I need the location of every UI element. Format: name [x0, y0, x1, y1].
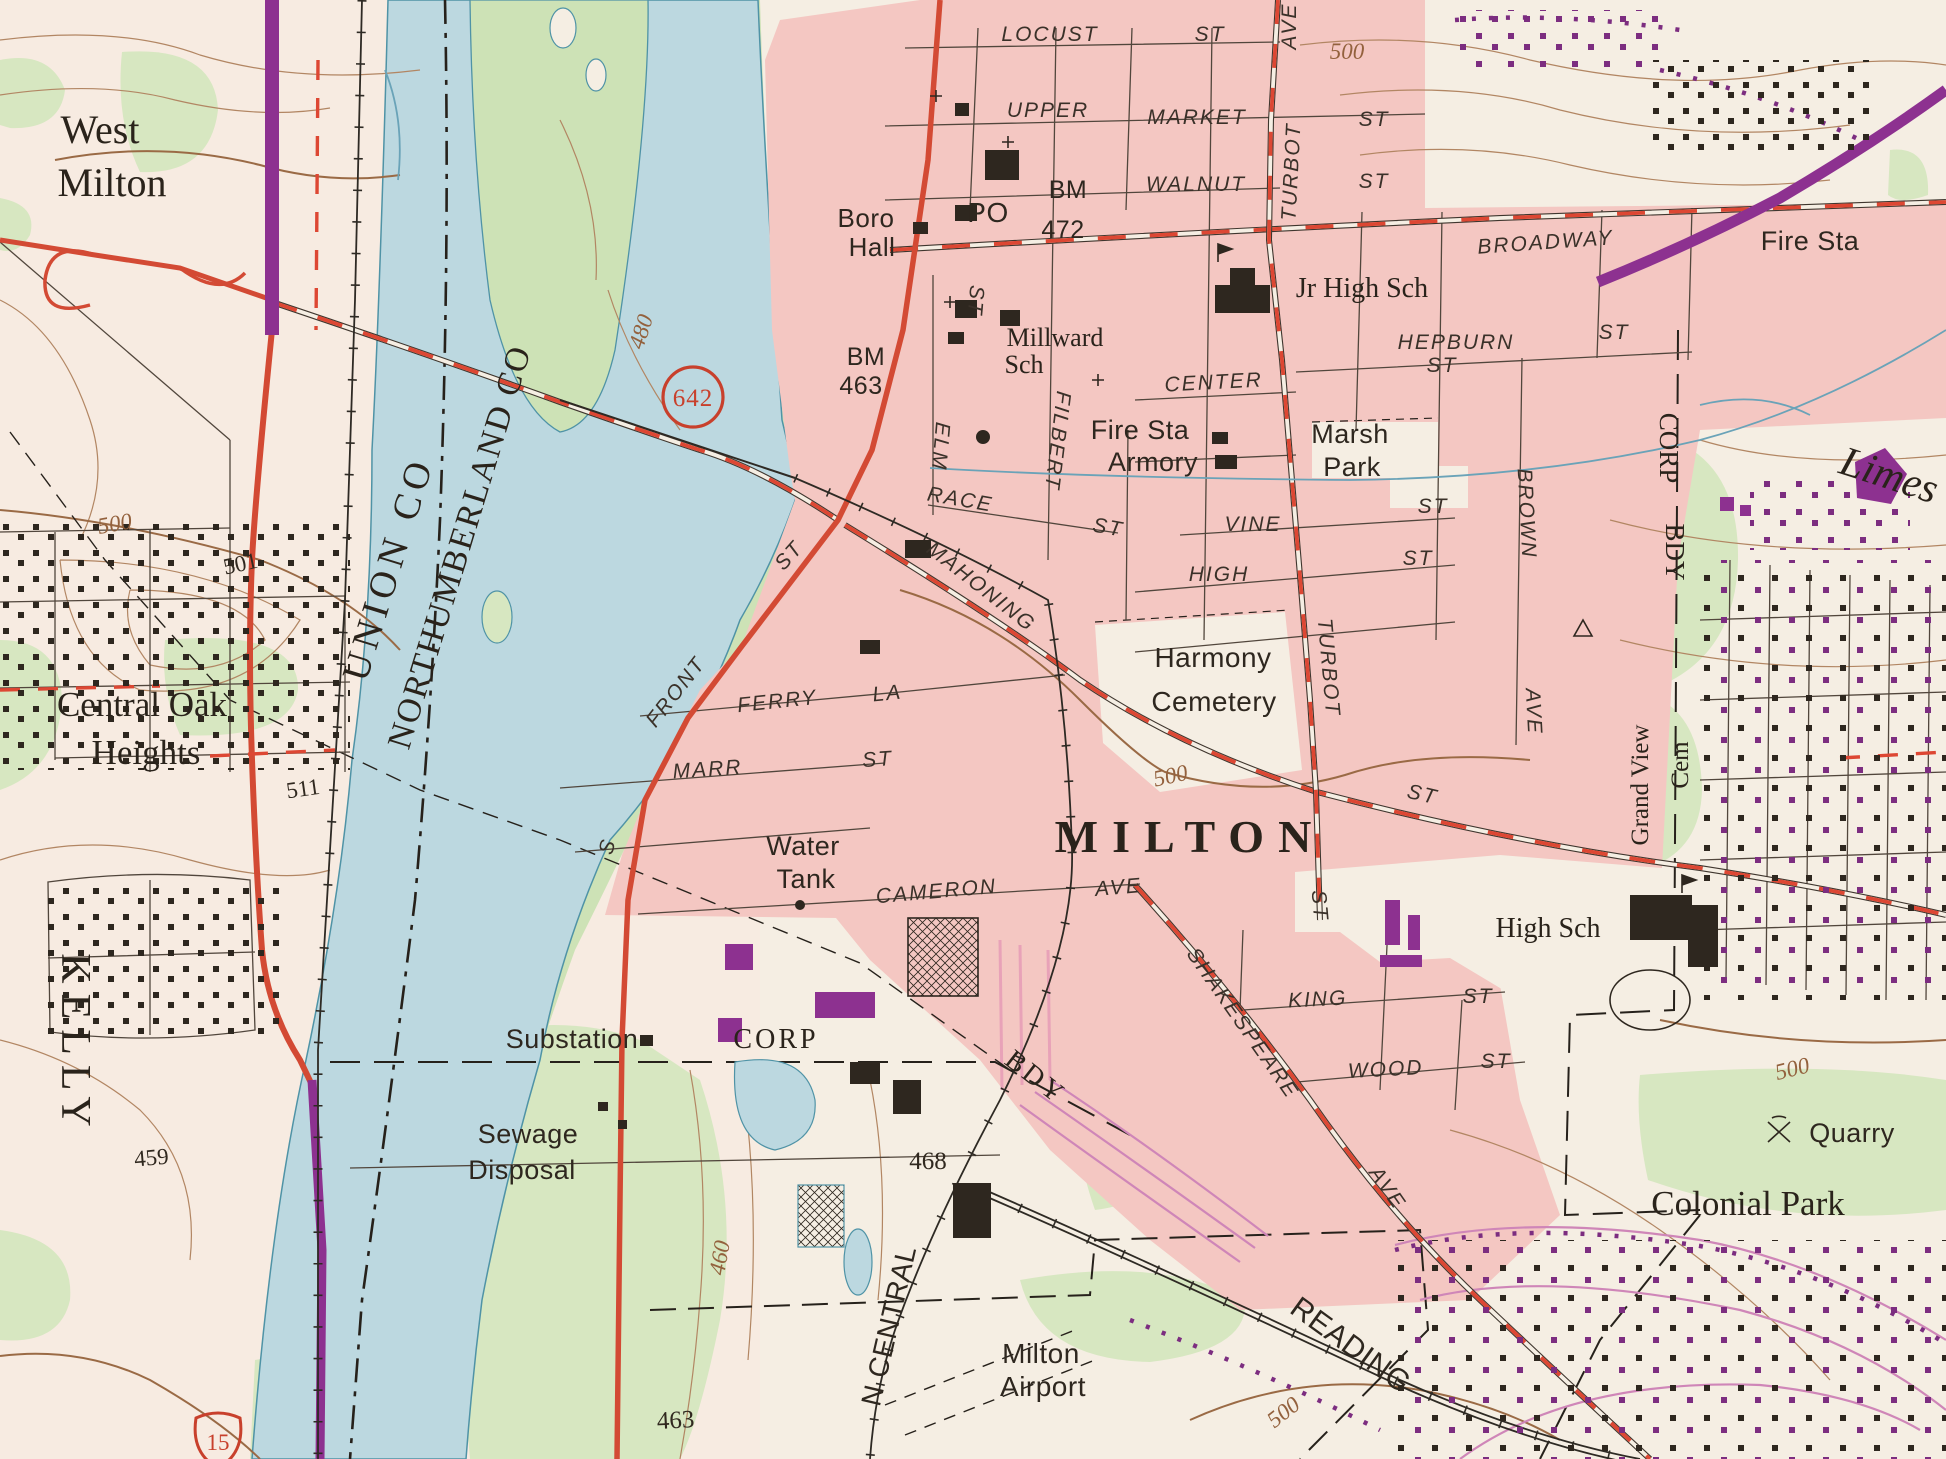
label-spot-468: 468	[909, 1148, 947, 1175]
label-water: Water	[766, 831, 840, 861]
label-marr: MARR	[672, 756, 743, 784]
label-west-milton: Milton	[58, 160, 167, 205]
label-corp-west: CORP	[733, 1024, 818, 1055]
label-wood-st: ST	[1481, 1050, 1512, 1073]
label-west: West	[61, 107, 140, 152]
label-ferry-la: LA	[871, 681, 903, 707]
label-market-st: ST	[1359, 108, 1390, 131]
topo-map-screenshot: 642 15 West Milton Central Oak Heights K…	[0, 0, 1946, 1459]
label-upper: UPPER	[1007, 99, 1089, 122]
label-bm463-bm: BM	[847, 343, 886, 371]
label-grand-view: Grand View	[1627, 725, 1654, 846]
label-walnut: WALNUT	[1146, 173, 1246, 196]
label-boro: Boro	[838, 203, 895, 233]
label-colonial-park: Colonial Park	[1651, 1184, 1845, 1223]
label-substation: Substation	[506, 1024, 639, 1054]
label-fire-sta-ne: Fire Sta	[1761, 226, 1860, 256]
water-tank-dot	[795, 900, 805, 910]
label-millward-sch: Sch	[1005, 350, 1044, 379]
label-milton-airport-2: Airport	[1000, 1371, 1086, 1402]
label-vine: VINE	[1224, 513, 1281, 536]
label-heights: Heights	[92, 733, 201, 772]
label-armory: Armory	[1108, 447, 1198, 477]
label-harmony-cemetery: Cemetery	[1151, 686, 1276, 717]
label-kelly: KELLY	[52, 953, 98, 1136]
label-millward: Millward	[1007, 323, 1104, 352]
label-sewage: Sewage	[478, 1119, 579, 1149]
label-turbot-ave-ave: AVE	[1278, 3, 1301, 52]
topo-map-canvas: 642 15 West Milton Central Oak Heights K…	[0, 0, 1946, 1459]
label-corp-east: CORP	[1654, 413, 1684, 484]
label-cameron-ave: AVE	[1092, 874, 1143, 901]
label-wood: WOOD	[1347, 1056, 1424, 1083]
label-market: MARKET	[1147, 106, 1247, 129]
label-king: KING	[1287, 986, 1347, 1012]
label-hepburn: HEPBURN	[1398, 331, 1515, 354]
label-spot-459: 459	[133, 1144, 170, 1172]
northeast-houses	[1650, 60, 1870, 160]
label-po: PO	[967, 197, 1008, 228]
label-brown: BROWN	[1513, 468, 1541, 560]
label-jr-high-sch: Jr High Sch	[1296, 273, 1428, 304]
label-marr-st: ST	[861, 747, 894, 772]
label-high-st: ST	[1403, 547, 1434, 570]
northeast-new-houses	[1460, 10, 1660, 70]
label-fire-sta: Fire Sta	[1091, 415, 1190, 445]
label-central-oak: Central Oak	[57, 685, 228, 724]
label-contour-500-ne: 500	[1330, 39, 1365, 64]
label-tank: Tank	[776, 864, 835, 894]
label-walnut-st: ST	[1359, 170, 1390, 193]
label-bdy-east: BDY	[1660, 523, 1690, 580]
label-harmony: Harmony	[1154, 642, 1271, 673]
label-hepburn-st: ST	[1427, 354, 1458, 377]
label-locust: LOCUST	[1001, 23, 1098, 46]
label-grand-view-cem: Cem	[1667, 741, 1694, 789]
river-island-small	[482, 591, 512, 643]
label-hall: Hall	[849, 232, 896, 262]
label-bm472-val: 472	[1041, 216, 1084, 244]
label-spot-463: 463	[656, 1406, 695, 1435]
label-elm: ELM	[927, 421, 954, 472]
route-15-number: 15	[207, 1430, 230, 1455]
label-hepburn-st-east: ST	[1599, 321, 1630, 344]
yard-crosshatch	[908, 918, 978, 996]
label-disposal: Disposal	[468, 1155, 576, 1185]
label-high-sch: High Sch	[1496, 913, 1601, 944]
label-high: HIGH	[1189, 563, 1250, 586]
label-marsh: Marsh	[1311, 419, 1389, 449]
label-king-st: ST	[1463, 985, 1494, 1008]
label-marsh-park: Park	[1323, 452, 1381, 482]
label-vine-st: ST	[1418, 495, 1449, 518]
label-locust-st: ST	[1195, 23, 1226, 46]
label-brown-ave: AVE	[1521, 686, 1547, 736]
east-suburb-houses	[1700, 560, 1946, 1000]
label-milton-airport-1: Milton	[1002, 1338, 1080, 1369]
route-642-number: 642	[673, 385, 714, 412]
label-bm463-val: 463	[839, 372, 882, 400]
label-spot-511: 511	[285, 774, 322, 803]
label-turbot-st-st: ST	[1307, 889, 1333, 922]
colonial-park-houses	[1390, 1240, 1946, 1459]
label-elm-st: ST	[963, 284, 989, 317]
label-milton: MILTON	[1055, 811, 1326, 862]
label-quarry: Quarry	[1809, 1118, 1895, 1148]
label-bm472-bm: BM	[1049, 176, 1088, 204]
